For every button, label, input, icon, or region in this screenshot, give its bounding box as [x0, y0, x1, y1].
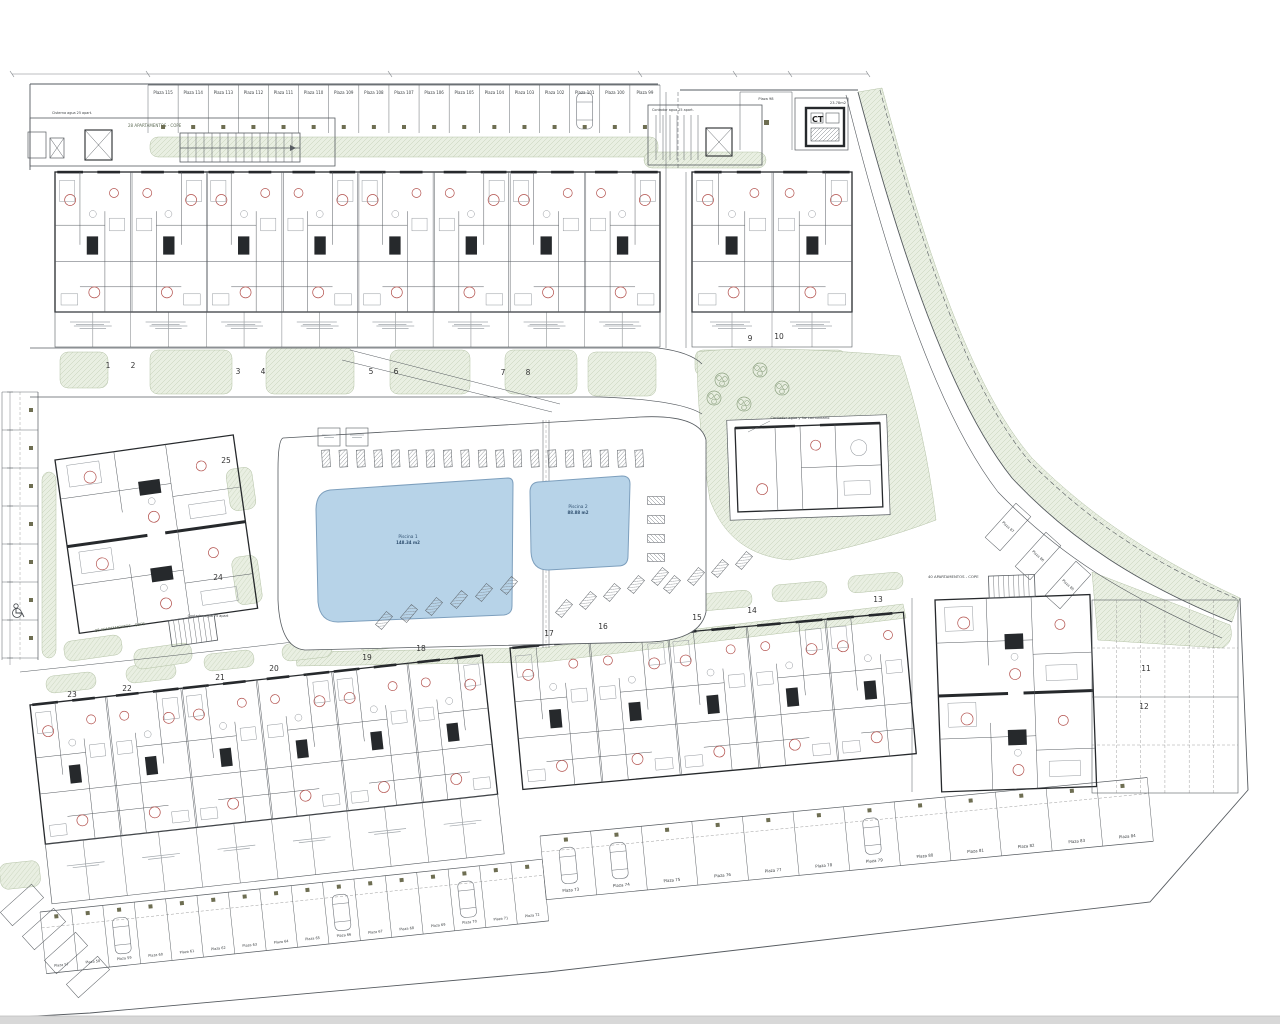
wall-core — [370, 731, 383, 750]
furniture — [1049, 760, 1081, 776]
furniture — [728, 674, 745, 688]
unit-number-label: 1 — [106, 361, 111, 370]
unit-number-label: 24 — [213, 573, 223, 582]
sun-lounger — [600, 450, 609, 467]
car-icon — [609, 842, 628, 879]
door-swing — [543, 287, 554, 298]
door-swing — [726, 644, 736, 654]
parking-space-label: Plaza 110 — [304, 90, 324, 95]
plan-line — [113, 926, 129, 928]
plan-line — [191, 769, 266, 777]
furniture — [148, 497, 156, 505]
wall-core — [1008, 729, 1027, 745]
wall-core — [617, 236, 628, 254]
pool-2: Piscina 288.88 m2 — [530, 476, 630, 570]
door-swing — [65, 195, 76, 206]
unit-number-label: 2 — [131, 361, 136, 370]
unit-number-label: 16 — [598, 622, 608, 631]
plan-line — [71, 909, 77, 971]
plan-line — [945, 797, 951, 861]
plan-line — [793, 812, 799, 876]
meter-box — [117, 908, 121, 912]
furniture — [464, 664, 481, 687]
plan-line — [995, 792, 1001, 856]
door-swing — [227, 798, 239, 810]
parking-space-label: Plaza 61 — [179, 949, 194, 955]
furniture — [295, 714, 303, 722]
wall-segment — [822, 171, 849, 174]
sun-lounger — [426, 450, 435, 467]
plan-line — [692, 821, 698, 885]
unit-number-label: 11 — [1141, 664, 1151, 673]
unit-number-label: 5 — [369, 367, 374, 376]
parking-space-label: Plaza 57 — [54, 962, 69, 968]
furniture — [543, 211, 550, 218]
plan-line — [518, 731, 597, 738]
wall-core — [389, 236, 400, 254]
furniture — [335, 294, 352, 305]
site-plan-drawing: Cisterna agua 25 apart.28 APARTAMENTOS -… — [0, 0, 1280, 1024]
wall-segment — [57, 171, 83, 174]
furniture — [267, 724, 283, 738]
meter-box — [402, 125, 406, 129]
sun-lounger — [648, 535, 665, 543]
green-area — [505, 350, 577, 394]
wall-core — [466, 236, 477, 254]
plan-line — [1034, 693, 1037, 789]
plan-line — [754, 710, 833, 717]
wall-segment — [360, 171, 386, 174]
car-icon — [112, 917, 132, 954]
door-swing — [883, 630, 893, 640]
door-swing — [337, 195, 348, 206]
meter-box — [29, 560, 33, 564]
car-icon — [862, 817, 881, 854]
furniture — [337, 678, 354, 701]
door-swing — [648, 657, 660, 669]
door-swing — [568, 659, 578, 669]
plan-line — [333, 672, 348, 811]
meter-box — [665, 828, 669, 832]
wall-segment — [292, 171, 315, 174]
plan-line — [271, 819, 278, 879]
green-area — [60, 352, 108, 388]
door-swing — [186, 195, 197, 206]
plan-line — [341, 752, 416, 760]
ct-label: CT — [812, 115, 824, 124]
plan-line — [1008, 575, 1009, 597]
car-icon — [457, 881, 477, 918]
furniture — [35, 711, 52, 734]
furniture — [467, 211, 474, 218]
parking-space-label: Plaza 77 — [764, 867, 782, 874]
furniture — [513, 180, 528, 201]
furniture — [351, 790, 369, 803]
furniture — [186, 695, 203, 718]
parking-space — [44, 932, 87, 973]
furniture — [364, 294, 381, 305]
sun-lounger — [565, 450, 574, 467]
door-swing — [871, 731, 883, 743]
meter-box — [399, 878, 403, 882]
parking-space-label: Plaza 64 — [274, 939, 290, 945]
furniture — [211, 180, 226, 201]
parking-space-label: Plaza 72 — [525, 913, 540, 919]
parking-space — [0, 884, 43, 925]
plan-line — [1147, 778, 1153, 842]
plan-line — [206, 686, 214, 758]
sun-lounger — [648, 497, 665, 505]
parking-space-label: Plaza 114 — [183, 90, 203, 95]
furniture — [685, 755, 703, 768]
door-swing — [728, 287, 739, 298]
furniture — [439, 218, 454, 231]
green-area — [42, 472, 56, 658]
plan-line — [407, 663, 422, 802]
wall-core — [138, 479, 161, 496]
green-area — [63, 634, 123, 662]
parking-space-label: Plaza 104 — [485, 90, 505, 95]
door-swing — [86, 714, 96, 724]
furniture — [831, 180, 847, 201]
sun-lounger — [322, 450, 331, 467]
door-swing — [83, 470, 97, 484]
door-swing — [464, 678, 476, 690]
parking-space-label: Plaza 76 — [714, 872, 732, 879]
door-swing — [196, 460, 207, 471]
wall-segment — [632, 171, 658, 174]
footer-strip — [0, 1016, 1280, 1024]
furniture — [165, 211, 172, 218]
plan-line — [198, 617, 202, 643]
sun-lounger — [339, 450, 348, 467]
wall-segment — [249, 171, 272, 174]
plan-rect — [609, 842, 628, 879]
unit-number-label: 17 — [544, 629, 554, 638]
door-swing — [109, 189, 118, 198]
plan-line — [990, 723, 992, 790]
wall-core — [726, 236, 738, 254]
meter-box — [1070, 789, 1074, 793]
furniture — [313, 681, 330, 704]
door-swing — [391, 287, 402, 298]
plan-line — [746, 627, 759, 768]
plan-line — [511, 863, 517, 925]
parking-space-label: Plaza 60 — [148, 952, 163, 958]
wall-segment — [141, 171, 164, 174]
meter-box — [251, 125, 255, 129]
unit-number-label: 25 — [221, 456, 231, 465]
wall-segment — [97, 171, 120, 174]
green-area — [150, 137, 658, 157]
plan-line — [354, 879, 360, 941]
wall-core — [628, 702, 641, 721]
plan-line — [55, 702, 63, 774]
unit-number-label: 3 — [236, 367, 241, 376]
plan-line — [385, 876, 391, 938]
furniture — [729, 211, 736, 218]
left-parking-column — [2, 392, 38, 660]
door-swing — [148, 511, 160, 523]
middle-parking-row: Plaza 73Plaza 74Plaza 75Plaza 76Plaza 77… — [540, 778, 1153, 900]
furniture — [640, 180, 655, 201]
unit-number-label: 10 — [774, 332, 784, 341]
meter-box — [494, 868, 498, 872]
sun-lounger — [583, 450, 592, 467]
wall-segment — [178, 171, 204, 174]
car-icon — [332, 894, 352, 931]
furniture — [89, 743, 105, 757]
cisterna-label: Cisterna agua 25 apart. — [52, 111, 92, 115]
unit-number-label: 7 — [501, 368, 506, 377]
meter-box — [312, 125, 316, 129]
plan-line — [1018, 575, 1019, 597]
furniture — [392, 211, 399, 218]
furniture — [89, 211, 96, 218]
plan-line — [826, 619, 839, 760]
block-label: 28 APARTAMENTOS - COPE — [128, 123, 182, 128]
door-swing — [421, 677, 431, 687]
plan-line — [333, 903, 349, 905]
plan-line — [347, 811, 354, 871]
meter-box — [766, 818, 770, 822]
wall-segment — [303, 671, 329, 676]
meter-box — [161, 125, 165, 129]
bottom-parking-row: Plaza 57Plaza 58Plaza 59Plaza 60Plaza 61… — [40, 859, 549, 973]
plan-line — [1023, 575, 1024, 597]
furniture — [750, 218, 766, 231]
furniture — [1011, 653, 1018, 660]
wall-segment — [938, 692, 1008, 697]
unit-number-label: 21 — [215, 673, 225, 682]
disabled-parking-icon — [13, 604, 25, 618]
door-swing — [556, 760, 568, 772]
wall-segment — [1023, 689, 1093, 694]
door-swing — [563, 189, 572, 198]
meter-box — [29, 598, 33, 602]
meter-box — [432, 125, 436, 129]
site-plan-page: Cisterna agua 25 apart.28 APARTAMENTOS -… — [0, 0, 1280, 1024]
door-swing — [450, 773, 462, 785]
furniture — [637, 294, 654, 305]
parking-space-label: Plaza 98 — [758, 97, 774, 101]
plan-line — [335, 921, 351, 923]
door-swing — [76, 814, 88, 826]
door-swing — [299, 790, 311, 802]
plan-circle — [14, 604, 18, 608]
plan-line — [589, 641, 602, 782]
parking-space-label: Plaza 71 — [493, 916, 508, 922]
car-icon — [577, 93, 593, 129]
plan-line — [105, 697, 120, 836]
door-swing — [1058, 715, 1068, 725]
parking-space-label: Plaza 109 — [334, 90, 354, 95]
furniture — [886, 659, 903, 673]
plan-line — [1046, 787, 1052, 851]
furniture — [391, 710, 407, 724]
sun-lounger — [635, 450, 644, 467]
door-swing — [603, 656, 613, 666]
wall-core — [150, 566, 173, 583]
furniture — [67, 461, 102, 487]
wall-segment — [334, 667, 360, 672]
meter-box — [867, 808, 871, 812]
wall-core — [1004, 633, 1023, 649]
door-swing — [378, 781, 390, 793]
meter-box — [86, 911, 90, 915]
unit-number-label: 15 — [692, 613, 702, 622]
plan-line — [178, 531, 190, 618]
meter-box — [148, 904, 152, 908]
furniture — [778, 218, 794, 231]
green-area — [133, 642, 193, 670]
pool-1: Piscina 1148.34 m2 — [316, 478, 513, 622]
plan-line — [115, 777, 190, 785]
furniture — [828, 294, 846, 305]
green-area — [847, 572, 903, 594]
plan-line — [182, 688, 197, 827]
door-swing — [785, 189, 794, 198]
parking-space-label: Plaza 113 — [214, 90, 234, 95]
unit-number-label: 4 — [261, 367, 266, 376]
furniture — [338, 180, 353, 201]
furniture — [571, 688, 588, 702]
plan-line — [851, 617, 858, 691]
door-swing — [789, 739, 801, 751]
plan-line — [228, 892, 234, 954]
meter-box — [817, 813, 821, 817]
building-row-bottom-left — [30, 654, 504, 904]
plan-line — [40, 912, 46, 974]
door-swing — [161, 287, 172, 298]
wall-segment — [400, 171, 423, 174]
door-swing — [831, 195, 842, 206]
plan-line — [865, 844, 881, 846]
building-11-12 — [934, 573, 1096, 792]
meter-box — [342, 125, 346, 129]
plan-line — [115, 944, 131, 946]
furniture — [805, 628, 823, 651]
door-swing — [261, 189, 270, 198]
plan-line — [291, 886, 297, 948]
plan-label: 88.88 m2 — [568, 510, 589, 515]
plan-line — [173, 620, 177, 646]
furniture — [212, 294, 229, 305]
door-swing — [119, 711, 129, 721]
meter-box — [431, 875, 435, 879]
green-area — [390, 350, 470, 394]
door-swing — [270, 694, 280, 704]
parking-space-label: Plaza 99 — [636, 90, 653, 95]
door-swing — [313, 695, 325, 707]
plan-line — [742, 817, 748, 881]
wall-core — [163, 236, 174, 254]
plan-line — [114, 452, 123, 513]
sun-lounger — [648, 516, 665, 524]
pool-deck: Piscina 1148.34 m2Piscina 288.88 m2 — [278, 417, 753, 650]
sun-lounger — [391, 450, 400, 467]
furniture — [49, 824, 67, 837]
plan-line — [457, 658, 465, 730]
meter-box — [462, 871, 466, 875]
door-swing — [464, 287, 475, 298]
parking-space-label: Plaza 67 — [368, 929, 383, 935]
plan-line — [332, 672, 347, 811]
plan-line — [1033, 652, 1092, 654]
meter-box — [191, 125, 195, 129]
meter-box — [1019, 794, 1023, 798]
furniture — [830, 626, 848, 649]
meter-box — [614, 832, 618, 836]
parking-space-label: Plaza 78 — [815, 862, 833, 869]
meter-box — [492, 125, 496, 129]
door-swing — [89, 287, 100, 298]
sun-lounger — [648, 554, 665, 562]
furniture — [697, 180, 713, 201]
parking-space-label: Plaza 84 — [1119, 833, 1137, 840]
plan-line — [166, 444, 178, 531]
unit-number-label: 18 — [416, 644, 426, 653]
door-swing — [149, 806, 161, 818]
plan-line — [667, 634, 680, 775]
meter-box — [29, 636, 33, 640]
plan-line — [998, 576, 999, 598]
furniture — [757, 671, 774, 685]
door-swing — [412, 189, 421, 198]
wall-segment — [694, 171, 721, 174]
contador-label: Contador agua 25 apart. — [652, 108, 694, 112]
plan-line — [1013, 575, 1014, 597]
wall-segment — [223, 680, 246, 685]
door-swing — [216, 195, 227, 206]
wall-segment — [32, 701, 58, 706]
door-swing — [805, 287, 816, 298]
furniture — [812, 743, 830, 756]
parking-space-label: Plaza 74 — [613, 882, 631, 889]
plan-line — [193, 617, 197, 643]
plan-rect — [795, 98, 848, 150]
plan-rect — [457, 881, 477, 918]
furniture — [109, 218, 124, 231]
furniture — [418, 707, 434, 721]
angled-parking-stalls — [0, 884, 109, 997]
door-swing — [240, 287, 251, 298]
plan-path — [600, 397, 702, 414]
plan-line — [560, 856, 576, 858]
wall-segment — [737, 171, 761, 174]
parking-space-label: Plaza 59 — [117, 956, 132, 962]
unit-number-label: 19 — [362, 653, 372, 662]
parking-space-label: Plaza 115 — [153, 90, 173, 95]
unit-number-label: 14 — [747, 606, 757, 615]
meter-box — [613, 125, 617, 129]
sun-lounger — [530, 450, 539, 467]
ct-transformer-block: Plaza 98CT23.78m2 — [740, 92, 848, 150]
meter-box — [29, 484, 33, 488]
sun-lounger — [496, 450, 505, 467]
plan-line — [103, 905, 109, 967]
plan-line — [178, 619, 182, 645]
plan-line — [894, 802, 900, 866]
plan-line — [417, 744, 492, 752]
plan-line — [1003, 576, 1004, 598]
plan-path — [530, 476, 630, 570]
parking-space-label: Plaza 68 — [399, 926, 414, 932]
furniture — [241, 211, 248, 218]
sun-lounger — [478, 450, 487, 467]
meter-box — [553, 125, 557, 129]
unit-number-label: 23 — [67, 690, 77, 699]
